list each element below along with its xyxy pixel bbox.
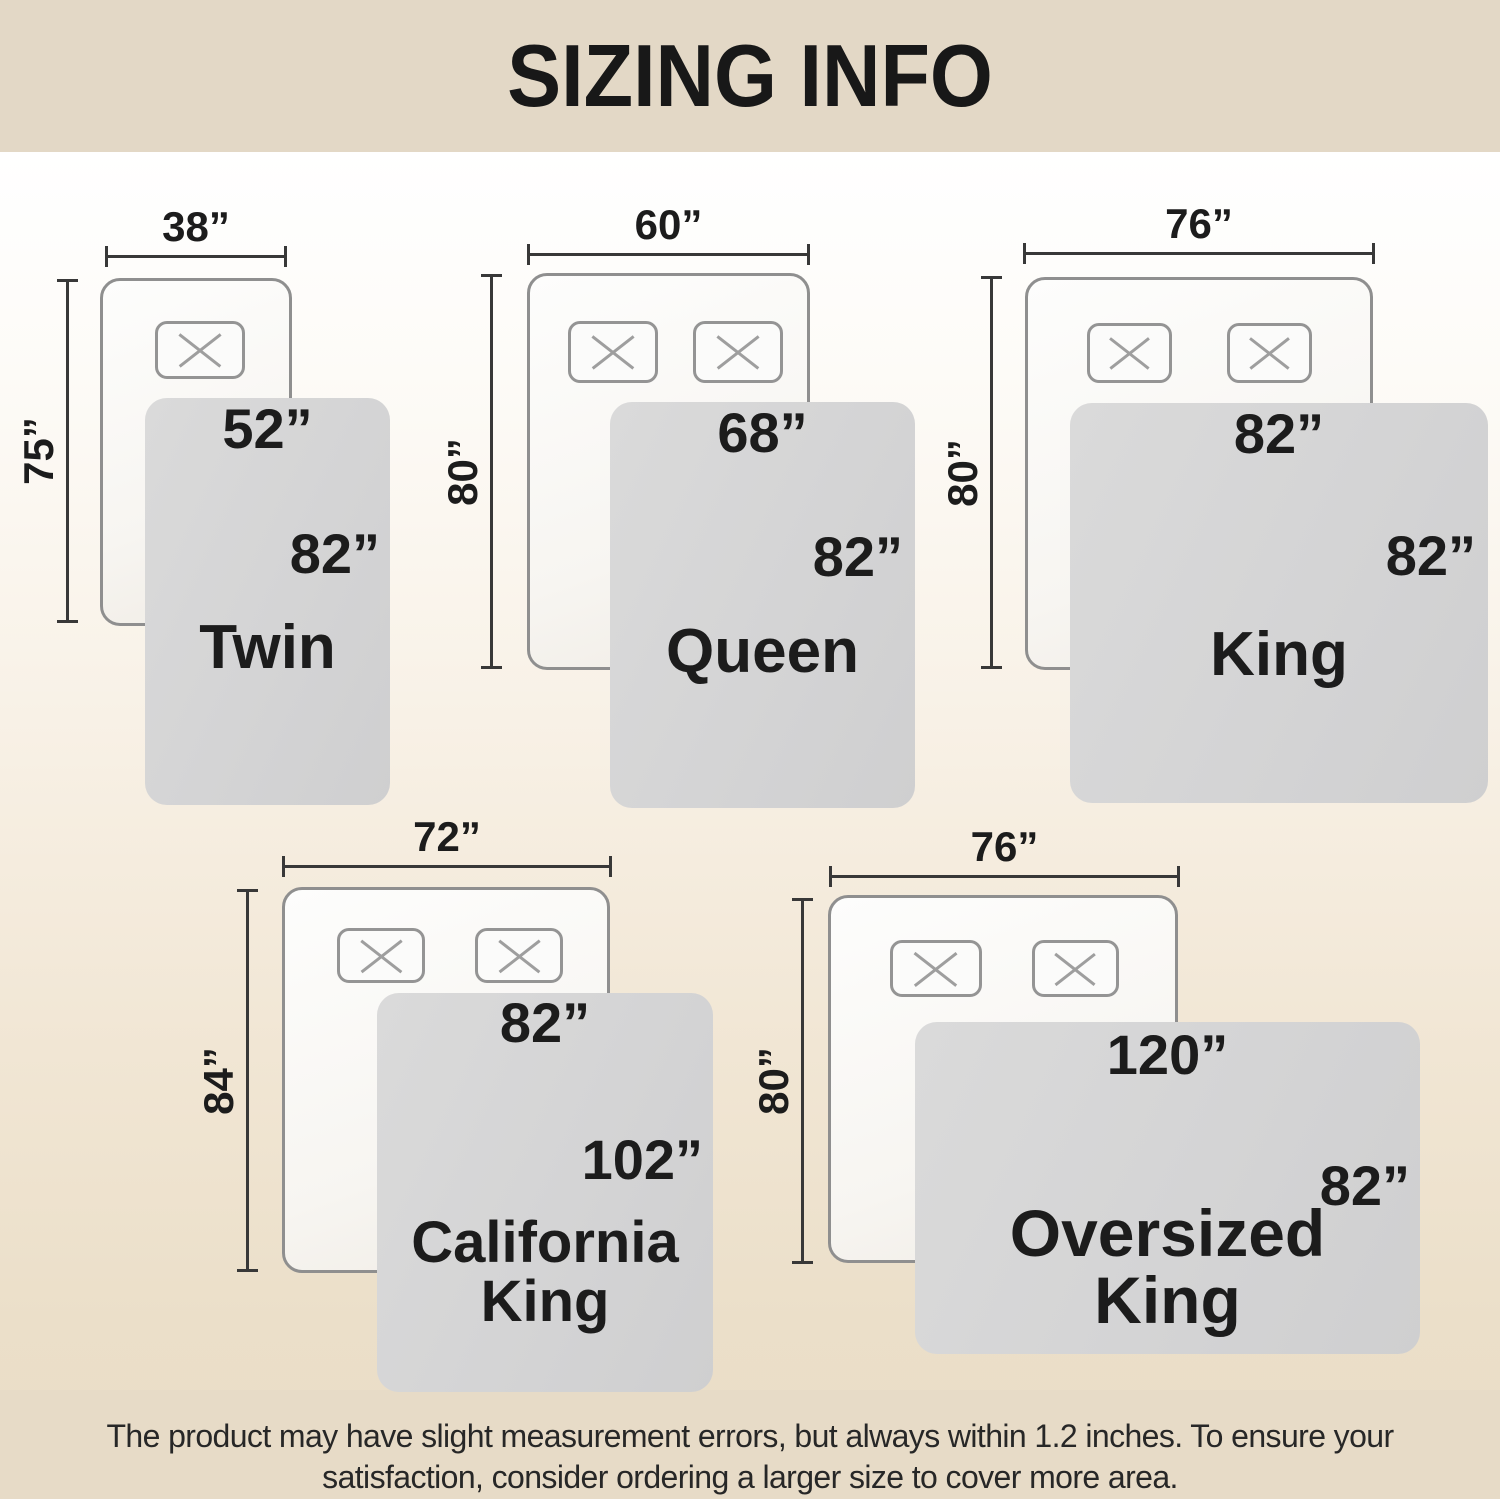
blanket-width-label: 120” <box>915 1027 1420 1083</box>
pillow-x-icon <box>890 940 982 997</box>
sizing-info-page: SIZING INFO The product may have slight … <box>0 0 1500 1499</box>
mattress-length-dimension: 80” <box>801 899 804 1263</box>
pillow-x-icon <box>1032 940 1119 997</box>
dimension-line <box>801 899 804 1263</box>
mattress-length-label: 80” <box>751 996 797 1166</box>
mattress-width-dimension: 76” <box>829 826 1180 878</box>
dimension-tick <box>829 866 832 887</box>
dimension-tick <box>1177 866 1180 887</box>
mattress-width-label: 76” <box>829 827 1180 867</box>
size-name-label: OversizedKing <box>915 1200 1420 1334</box>
dimension-tick <box>792 1261 813 1264</box>
dimension-line <box>829 875 1180 878</box>
blanket-oversized-king: 120” 82” OversizedKing <box>915 1022 1420 1354</box>
dimension-tick <box>792 898 813 901</box>
size-name-line: King <box>915 1267 1420 1334</box>
size-name-line: Oversized <box>915 1200 1420 1267</box>
size-diagram-oversized-king: 76” 80” 120” 82” OversizedKing <box>0 0 1500 1499</box>
